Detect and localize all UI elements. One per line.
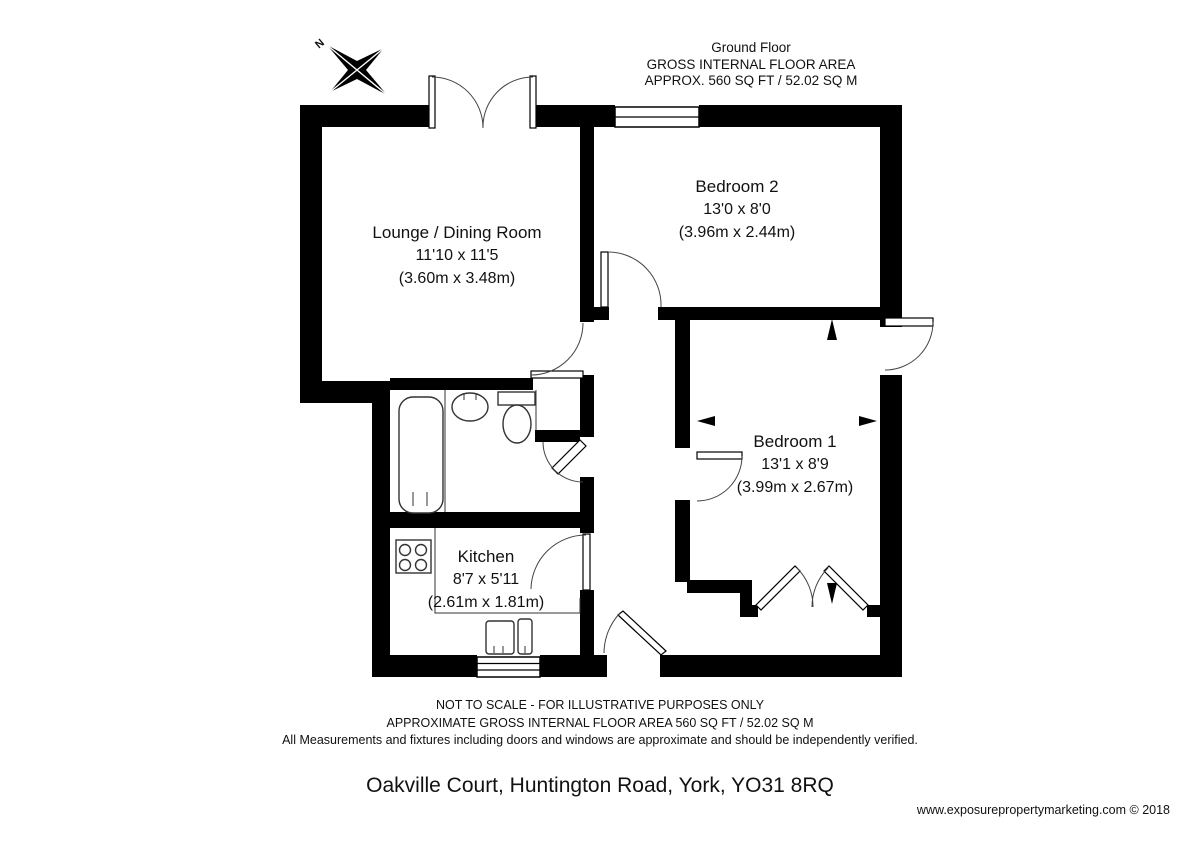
marketing-credit: www.exposurepropertymarketing.com © 2018 xyxy=(800,803,1170,817)
entry-double-door-icon xyxy=(429,76,536,128)
room-size-metric: (3.99m x 2.67m) xyxy=(685,476,905,499)
room-name: Bedroom 2 xyxy=(627,175,847,198)
room-size-imperial: 13'1 x 8'9 xyxy=(685,453,905,476)
disclaimer-block: NOT TO SCALE - FOR ILLUSTRATIVE PURPOSES… xyxy=(100,697,1100,750)
room-name: Kitchen xyxy=(376,545,596,568)
bathtub-icon xyxy=(399,397,443,513)
room-label-bedroom1: Bedroom 1 13'1 x 8'9 (3.99m x 2.67m) xyxy=(685,430,905,499)
window-icon-kitchen xyxy=(477,657,540,677)
disclaimer-line-2: APPROXIMATE GROSS INTERNAL FLOOR AREA 56… xyxy=(100,715,1100,733)
door-icon-bedroom1-exterior xyxy=(885,318,933,370)
compass-icon xyxy=(327,45,387,95)
area-value: APPROX. 560 SQ FT / 52.02 SQ M xyxy=(570,73,932,90)
door-icon-lounge xyxy=(531,323,583,378)
room-size-imperial: 13'0 x 8'0 xyxy=(627,198,847,221)
room-size-metric: (3.96m x 2.44m) xyxy=(627,221,847,244)
room-size-metric: (2.61m x 1.81m) xyxy=(376,591,596,614)
window-icon-bedroom2 xyxy=(615,107,699,127)
property-address: Oakville Court, Huntington Road, York, Y… xyxy=(0,774,1200,798)
sink-icon xyxy=(452,393,488,421)
floor-title: Ground Floor xyxy=(570,40,932,57)
room-size-imperial: 11'10 x 11'5 xyxy=(347,244,567,267)
title-block: Ground Floor GROSS INTERNAL FLOOR AREA A… xyxy=(570,40,932,90)
door-icon-bathroom xyxy=(543,440,586,482)
appliance-icons xyxy=(486,619,532,654)
room-label-kitchen: Kitchen 8'7 x 5'11 (2.61m x 1.81m) xyxy=(376,545,596,614)
disclaimer-line-3: All Measurements and fixtures including … xyxy=(100,732,1100,750)
disclaimer-line-1: NOT TO SCALE - FOR ILLUSTRATIVE PURPOSES… xyxy=(100,697,1100,715)
door-icon-hall-cupboard xyxy=(604,611,666,655)
room-name: Bedroom 1 xyxy=(685,430,905,453)
area-label: GROSS INTERNAL FLOOR AREA xyxy=(570,57,932,74)
room-size-imperial: 8'7 x 5'11 xyxy=(376,568,596,591)
room-size-metric: (3.60m x 3.48m) xyxy=(347,267,567,290)
closet-doors-icon xyxy=(756,566,868,610)
floorplan-page: N Ground Floor GROSS INTERNAL FLOOR AREA… xyxy=(0,0,1200,848)
toilet-icon xyxy=(498,392,535,443)
room-label-bedroom2: Bedroom 2 13'0 x 8'0 (3.96m x 2.44m) xyxy=(627,175,847,244)
room-label-lounge: Lounge / Dining Room 11'10 x 11'5 (3.60m… xyxy=(347,221,567,290)
door-icon-bedroom2 xyxy=(601,252,661,307)
room-name: Lounge / Dining Room xyxy=(347,221,567,244)
